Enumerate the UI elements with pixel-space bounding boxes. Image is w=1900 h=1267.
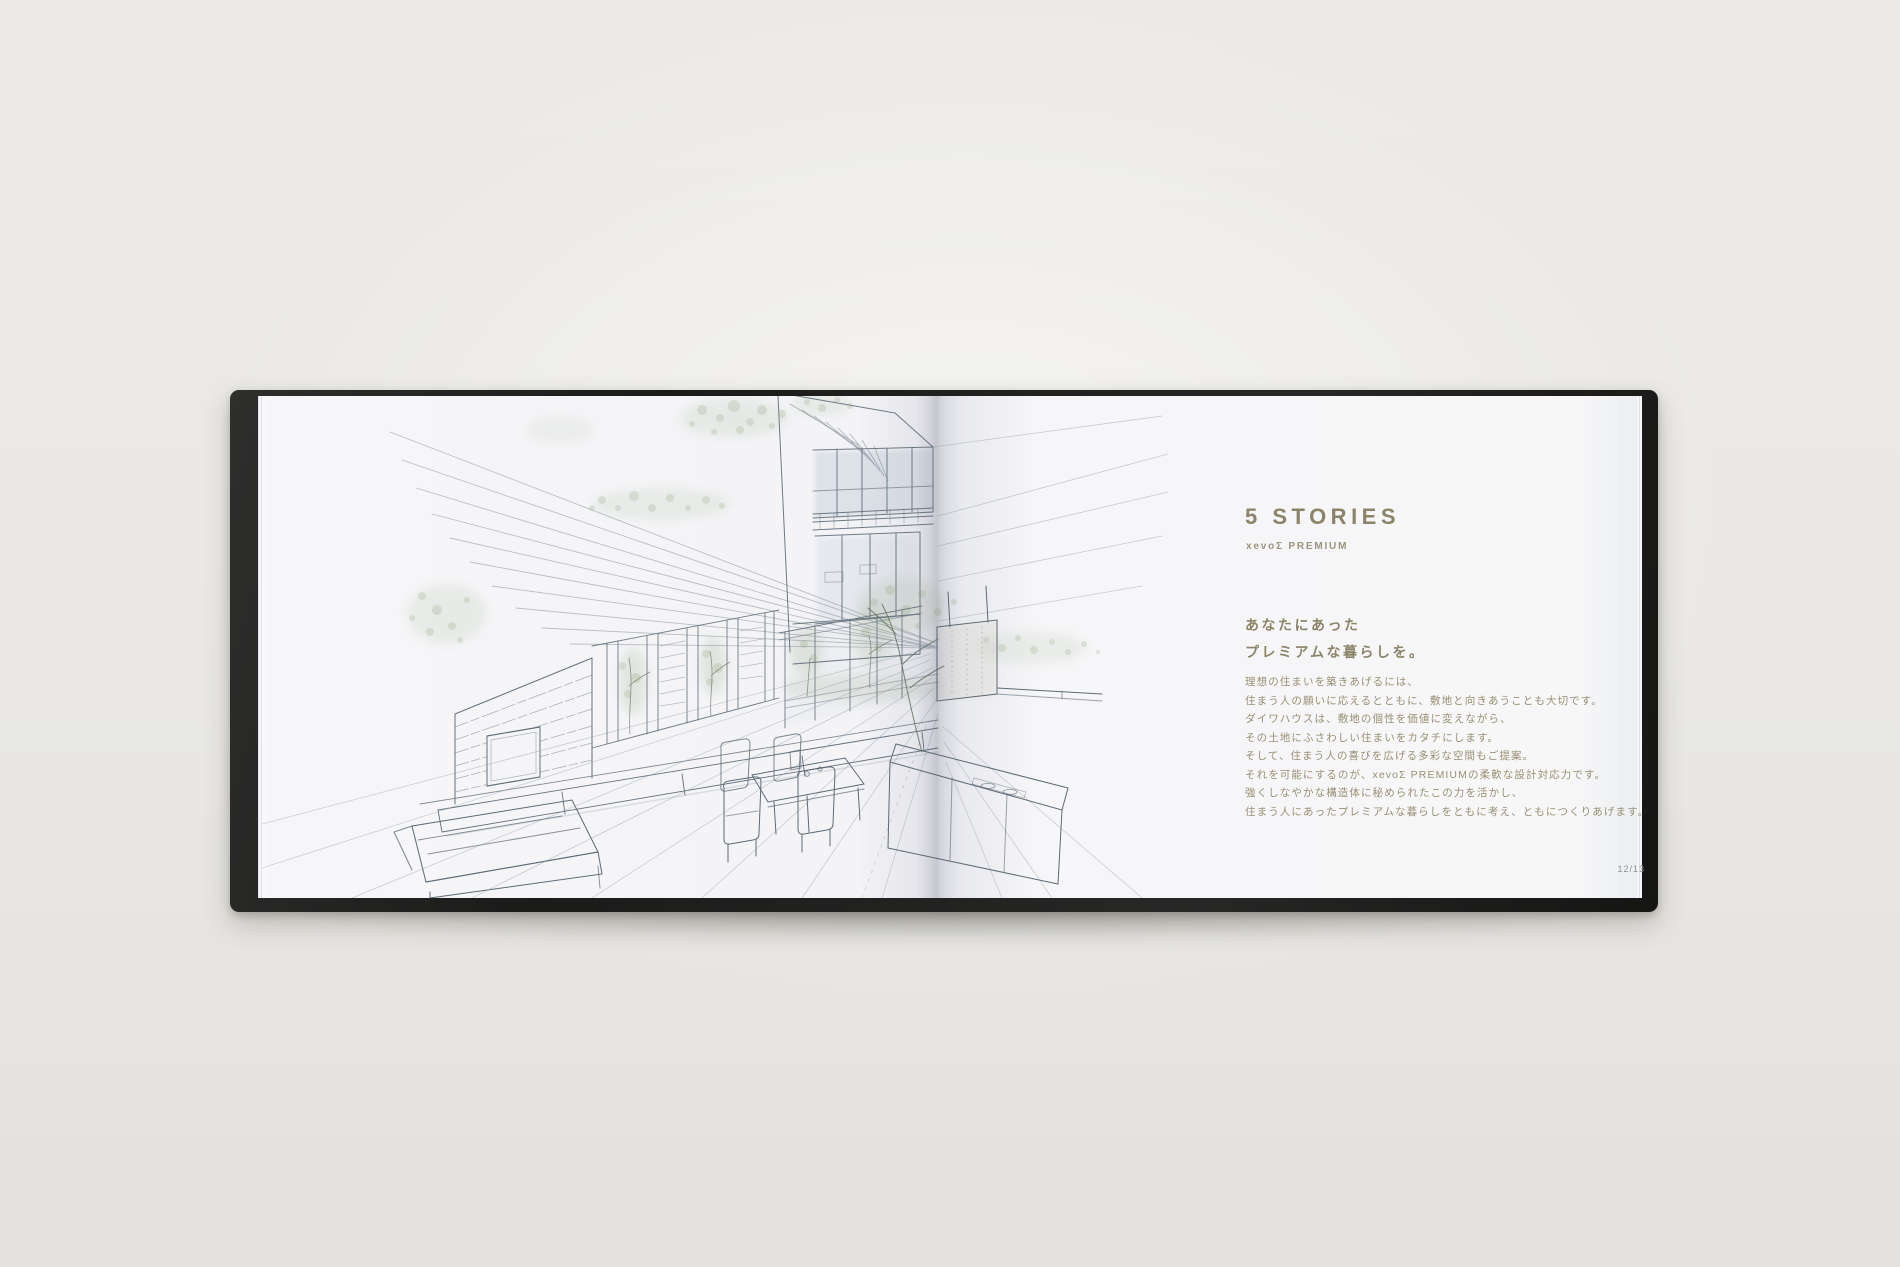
kitchen-island — [888, 744, 1068, 884]
body-line: その土地にふさわしい住まいをカタチにします。 — [1245, 729, 1649, 748]
brand-subtitle: xevoΣ PREMIUM — [1246, 541, 1348, 552]
page-number: 12/13 — [1560, 864, 1645, 874]
dining-table-and-chairs — [721, 734, 864, 862]
body-line: それを可能にするのが、xevoΣ PREMIUMの柔軟な設計対応力です。 — [1245, 766, 1649, 785]
fireplace-wall — [455, 658, 592, 804]
photo-background: 5 STORIES xevoΣ PREMIUM あなたにあった プレミアムな暮ら… — [0, 0, 1900, 1267]
page-title: 5 STORIES — [1245, 504, 1400, 530]
right-page-pencil-lines — [933, 416, 1168, 621]
lead-line: プレミアムな暮らしを。 — [1245, 639, 1426, 666]
right-page-stack-edge — [1637, 396, 1642, 898]
body-line: 強くしなやかな構造体に秘められたこの力を活かし、 — [1245, 784, 1649, 803]
gutter-shadow — [916, 396, 962, 898]
lead-line: あなたにあった — [1245, 612, 1426, 639]
architectural-sketch — [262, 396, 1180, 898]
body-line: 住まう人にあったプレミアムな暮らしをともに考え、ともにつくりあげます。 — [1245, 803, 1649, 822]
body-line: 住まう人の願いに応えるとともに、敷地と向きあうことも大切です。 — [1245, 692, 1649, 711]
body-line: そして、住まう人の喜びを広げる多彩な空間もご提案。 — [1245, 747, 1649, 766]
lead-copy: あなたにあった プレミアムな暮らしを。 — [1245, 612, 1426, 666]
body-line: 理想の住まいを築きあげるには、 — [1245, 673, 1649, 692]
body-line: ダイワハウスは、敷地の個性を価値に変えながら、 — [1245, 710, 1649, 729]
body-copy: 理想の住まいを築きあげるには、 住まう人の願いに応えるとともに、敷地と向きあうこ… — [1245, 673, 1649, 821]
